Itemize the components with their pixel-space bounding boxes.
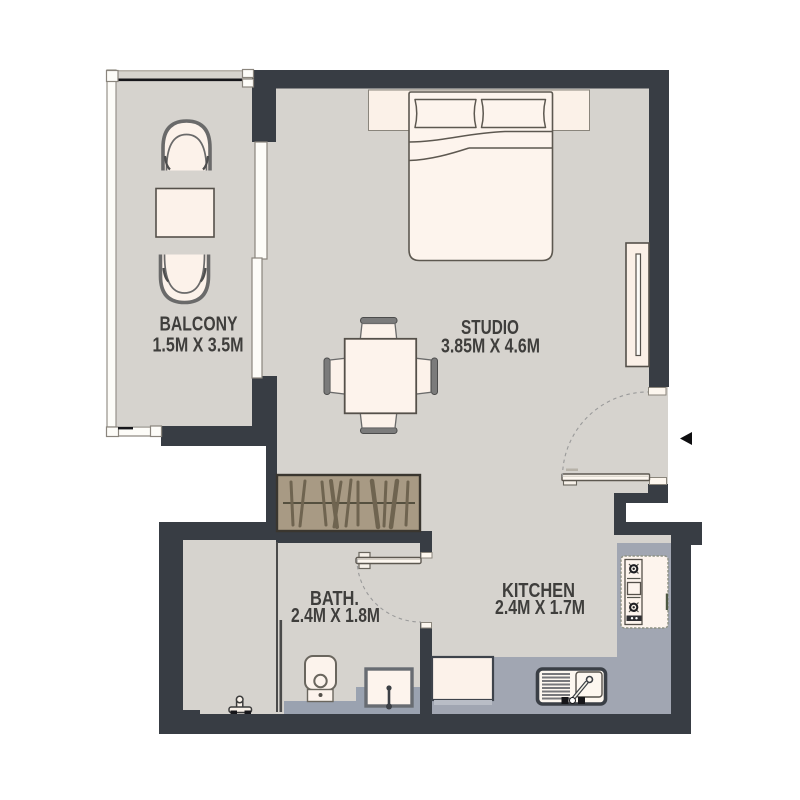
svg-text:BALCONY: BALCONY [160, 313, 238, 336]
svg-text:2.4M X 1.8M: 2.4M X 1.8M [291, 604, 380, 627]
svg-text:1.5M X 3.5M: 1.5M X 3.5M [153, 334, 244, 357]
svg-text:2.4M X 1.7M: 2.4M X 1.7M [495, 596, 585, 619]
svg-text:3.85M X 4.6M: 3.85M X 4.6M [441, 335, 540, 358]
